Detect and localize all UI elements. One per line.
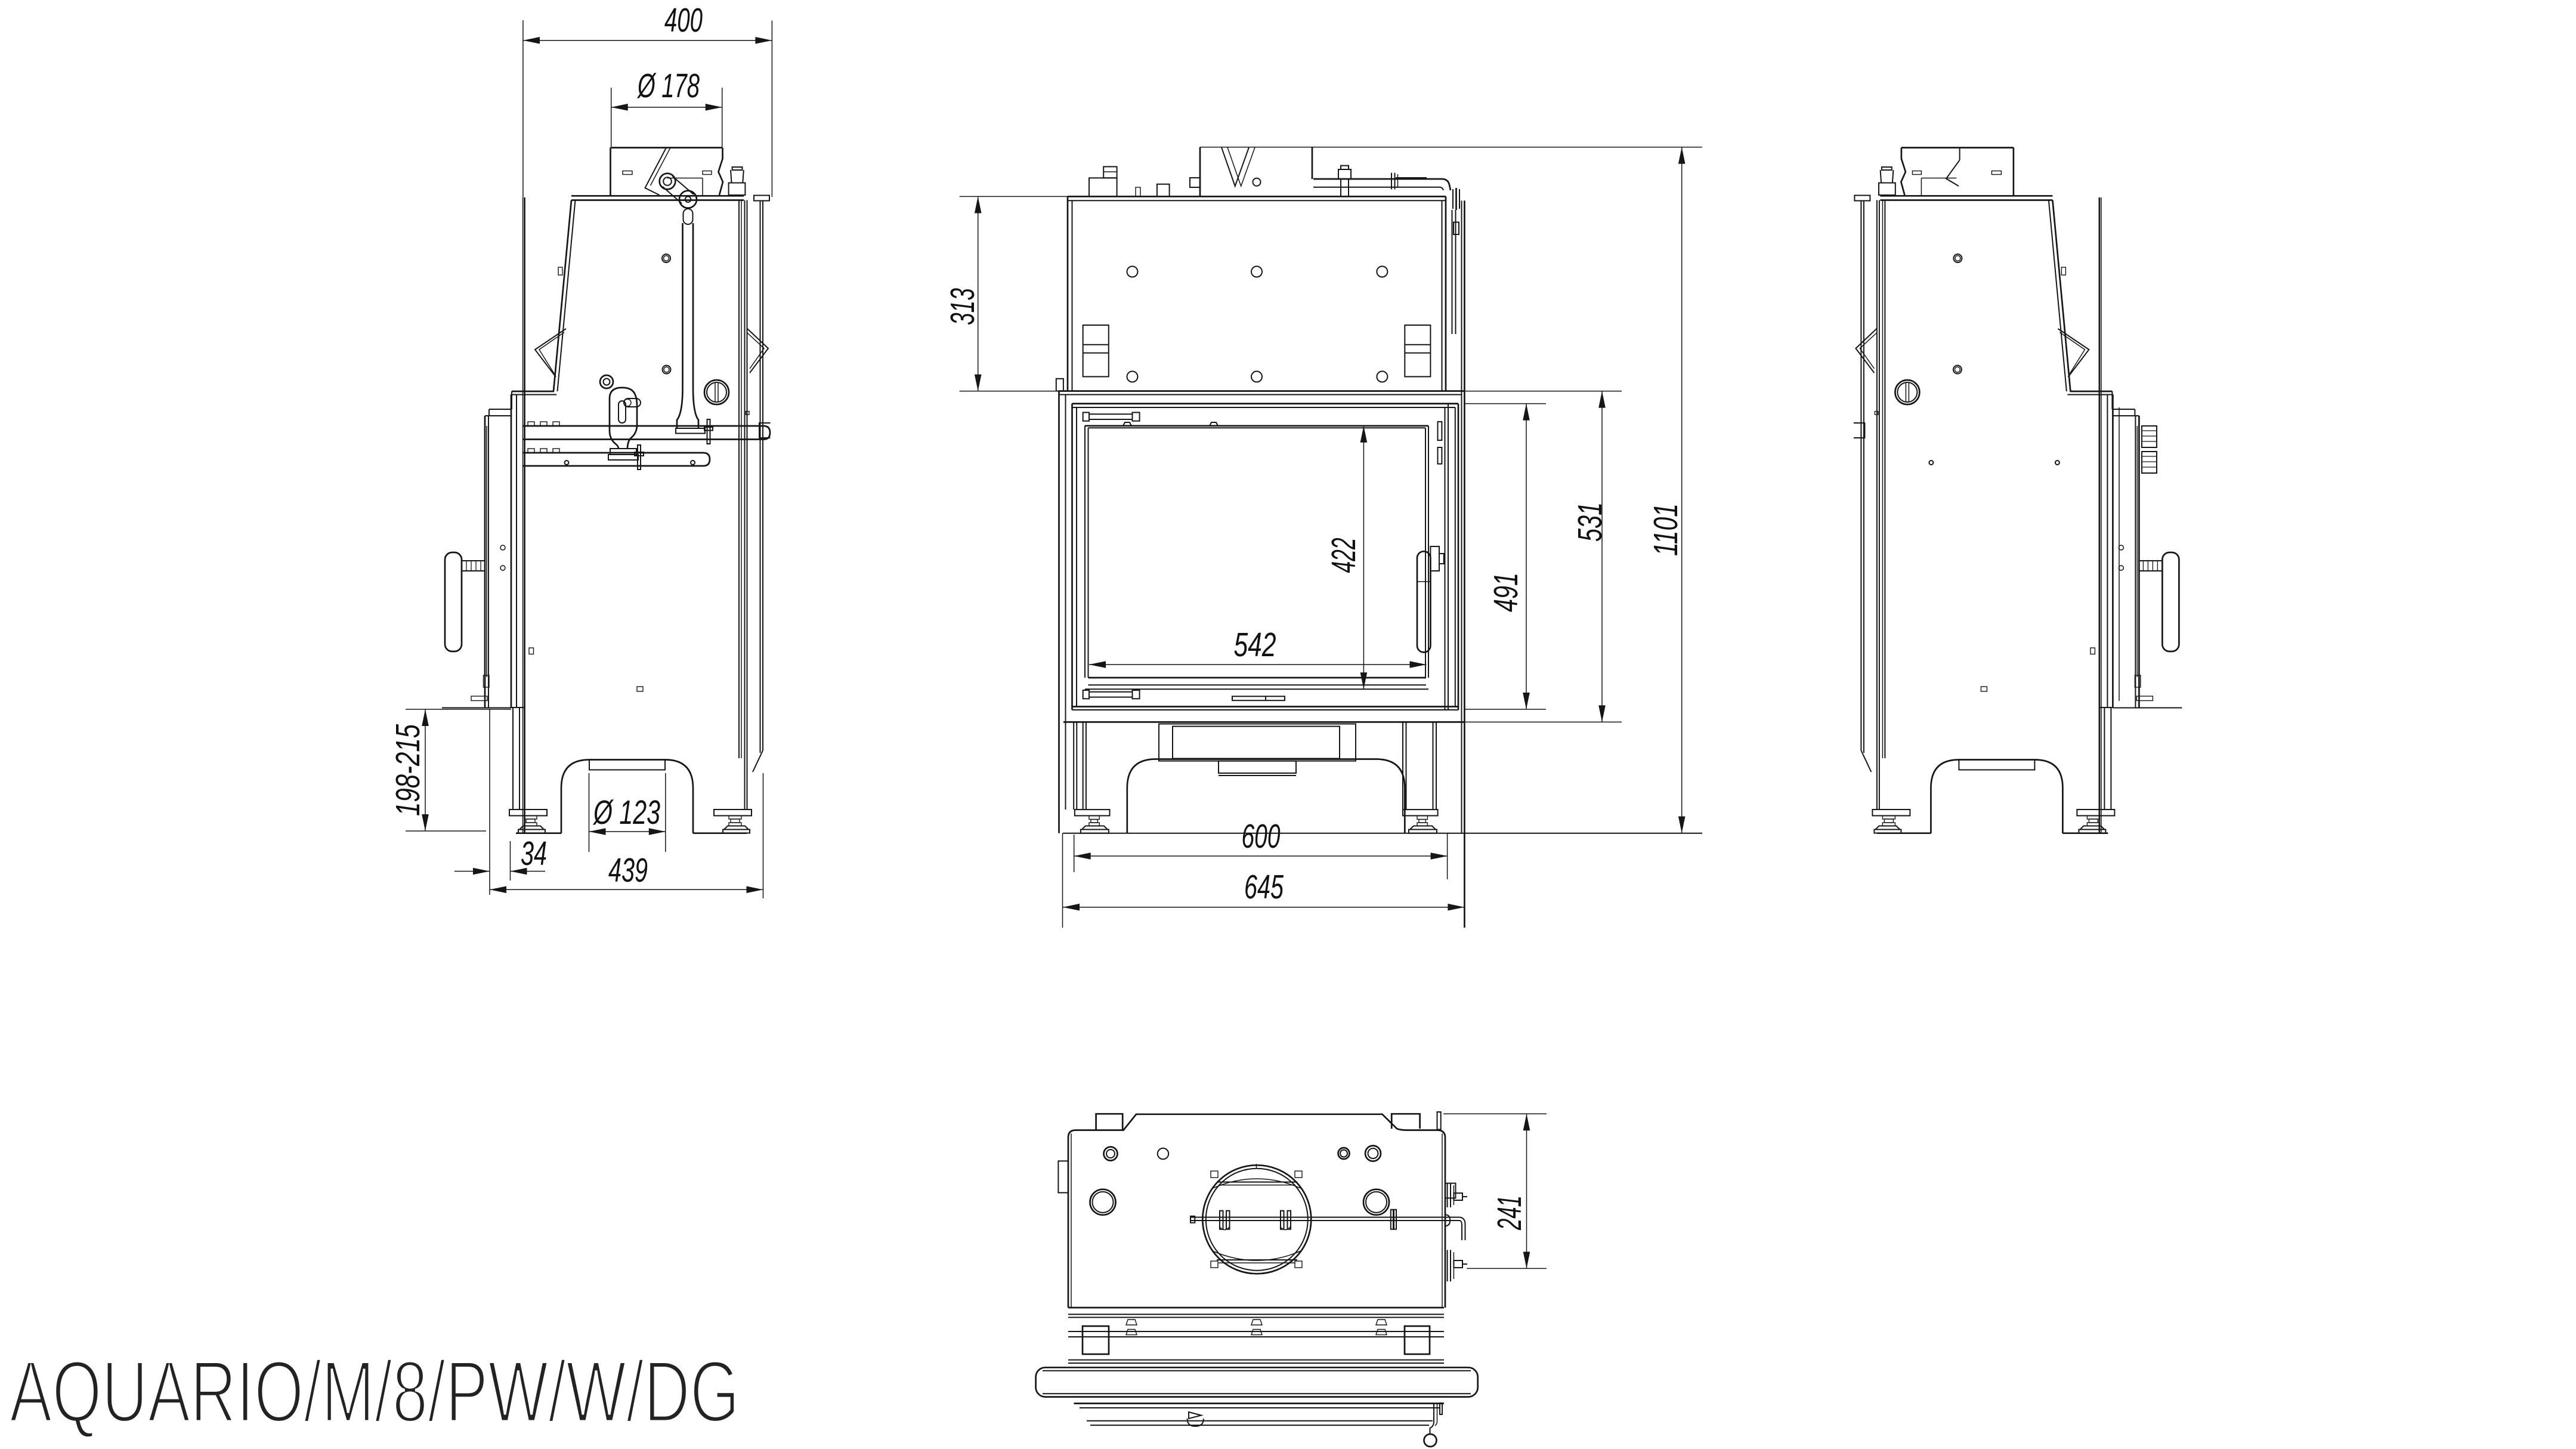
svg-text:491: 491 bbox=[1487, 573, 1525, 612]
svg-text:645: 645 bbox=[1244, 868, 1284, 906]
svg-text:34: 34 bbox=[521, 835, 547, 873]
svg-text:1101: 1101 bbox=[1647, 503, 1685, 556]
svg-text:600: 600 bbox=[1242, 817, 1281, 855]
svg-text:400: 400 bbox=[664, 1, 703, 39]
svg-text:531: 531 bbox=[1571, 502, 1609, 542]
svg-text:198-215: 198-215 bbox=[389, 724, 427, 816]
svg-text:Ø 178: Ø 178 bbox=[637, 67, 700, 105]
svg-text:AQUARIO/M/8/PW/W/DG: AQUARIO/M/8/PW/W/DG bbox=[10, 1343, 740, 1440]
svg-text:241: 241 bbox=[1490, 1195, 1529, 1231]
svg-text:313: 313 bbox=[944, 288, 982, 325]
svg-text:Ø 123: Ø 123 bbox=[593, 793, 661, 832]
svg-text:439: 439 bbox=[608, 851, 648, 889]
svg-text:422: 422 bbox=[1325, 538, 1363, 573]
svg-text:542: 542 bbox=[1234, 626, 1276, 664]
